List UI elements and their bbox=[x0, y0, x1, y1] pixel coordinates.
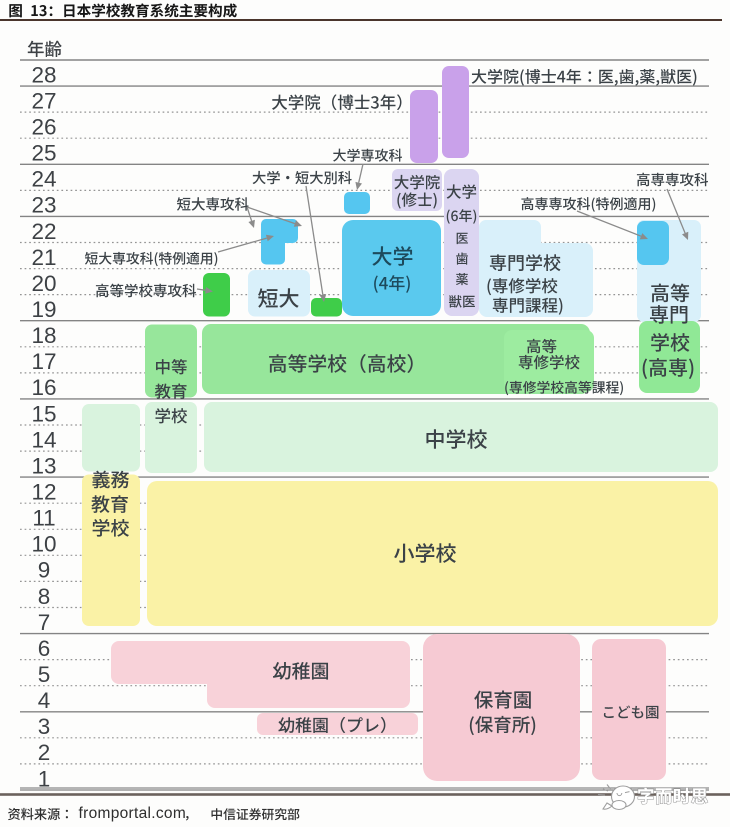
svg-text:10: 10 bbox=[31, 532, 56, 557]
svg-text:13: 13 bbox=[31, 453, 56, 478]
svg-text:3: 3 bbox=[38, 714, 51, 739]
svg-text:12: 12 bbox=[31, 480, 56, 505]
svg-text:25: 25 bbox=[31, 141, 56, 166]
svg-text:22: 22 bbox=[31, 219, 56, 244]
svg-text:16: 16 bbox=[31, 375, 56, 400]
svg-text:9: 9 bbox=[38, 558, 51, 583]
svg-text:8: 8 bbox=[38, 584, 51, 609]
svg-text:20: 20 bbox=[31, 271, 56, 296]
svg-text:28: 28 bbox=[31, 62, 56, 87]
svg-text:26: 26 bbox=[31, 115, 56, 140]
svg-text:2: 2 bbox=[38, 740, 51, 765]
svg-text:23: 23 bbox=[31, 193, 56, 218]
svg-text:19: 19 bbox=[31, 297, 56, 322]
svg-text:5: 5 bbox=[38, 662, 51, 687]
svg-text:27: 27 bbox=[31, 88, 56, 113]
svg-text:21: 21 bbox=[31, 245, 56, 270]
svg-text:fromportal.com: fromportal.com bbox=[79, 805, 187, 822]
svg-text:11: 11 bbox=[32, 506, 55, 531]
svg-text:17: 17 bbox=[31, 349, 56, 374]
svg-text:6: 6 bbox=[38, 636, 51, 661]
svg-text:15: 15 bbox=[31, 401, 56, 426]
svg-text:18: 18 bbox=[31, 323, 56, 348]
svg-text:24: 24 bbox=[31, 167, 56, 192]
svg-text:14: 14 bbox=[31, 427, 56, 452]
svg-text:4: 4 bbox=[38, 688, 51, 713]
svg-text:7: 7 bbox=[38, 610, 51, 635]
